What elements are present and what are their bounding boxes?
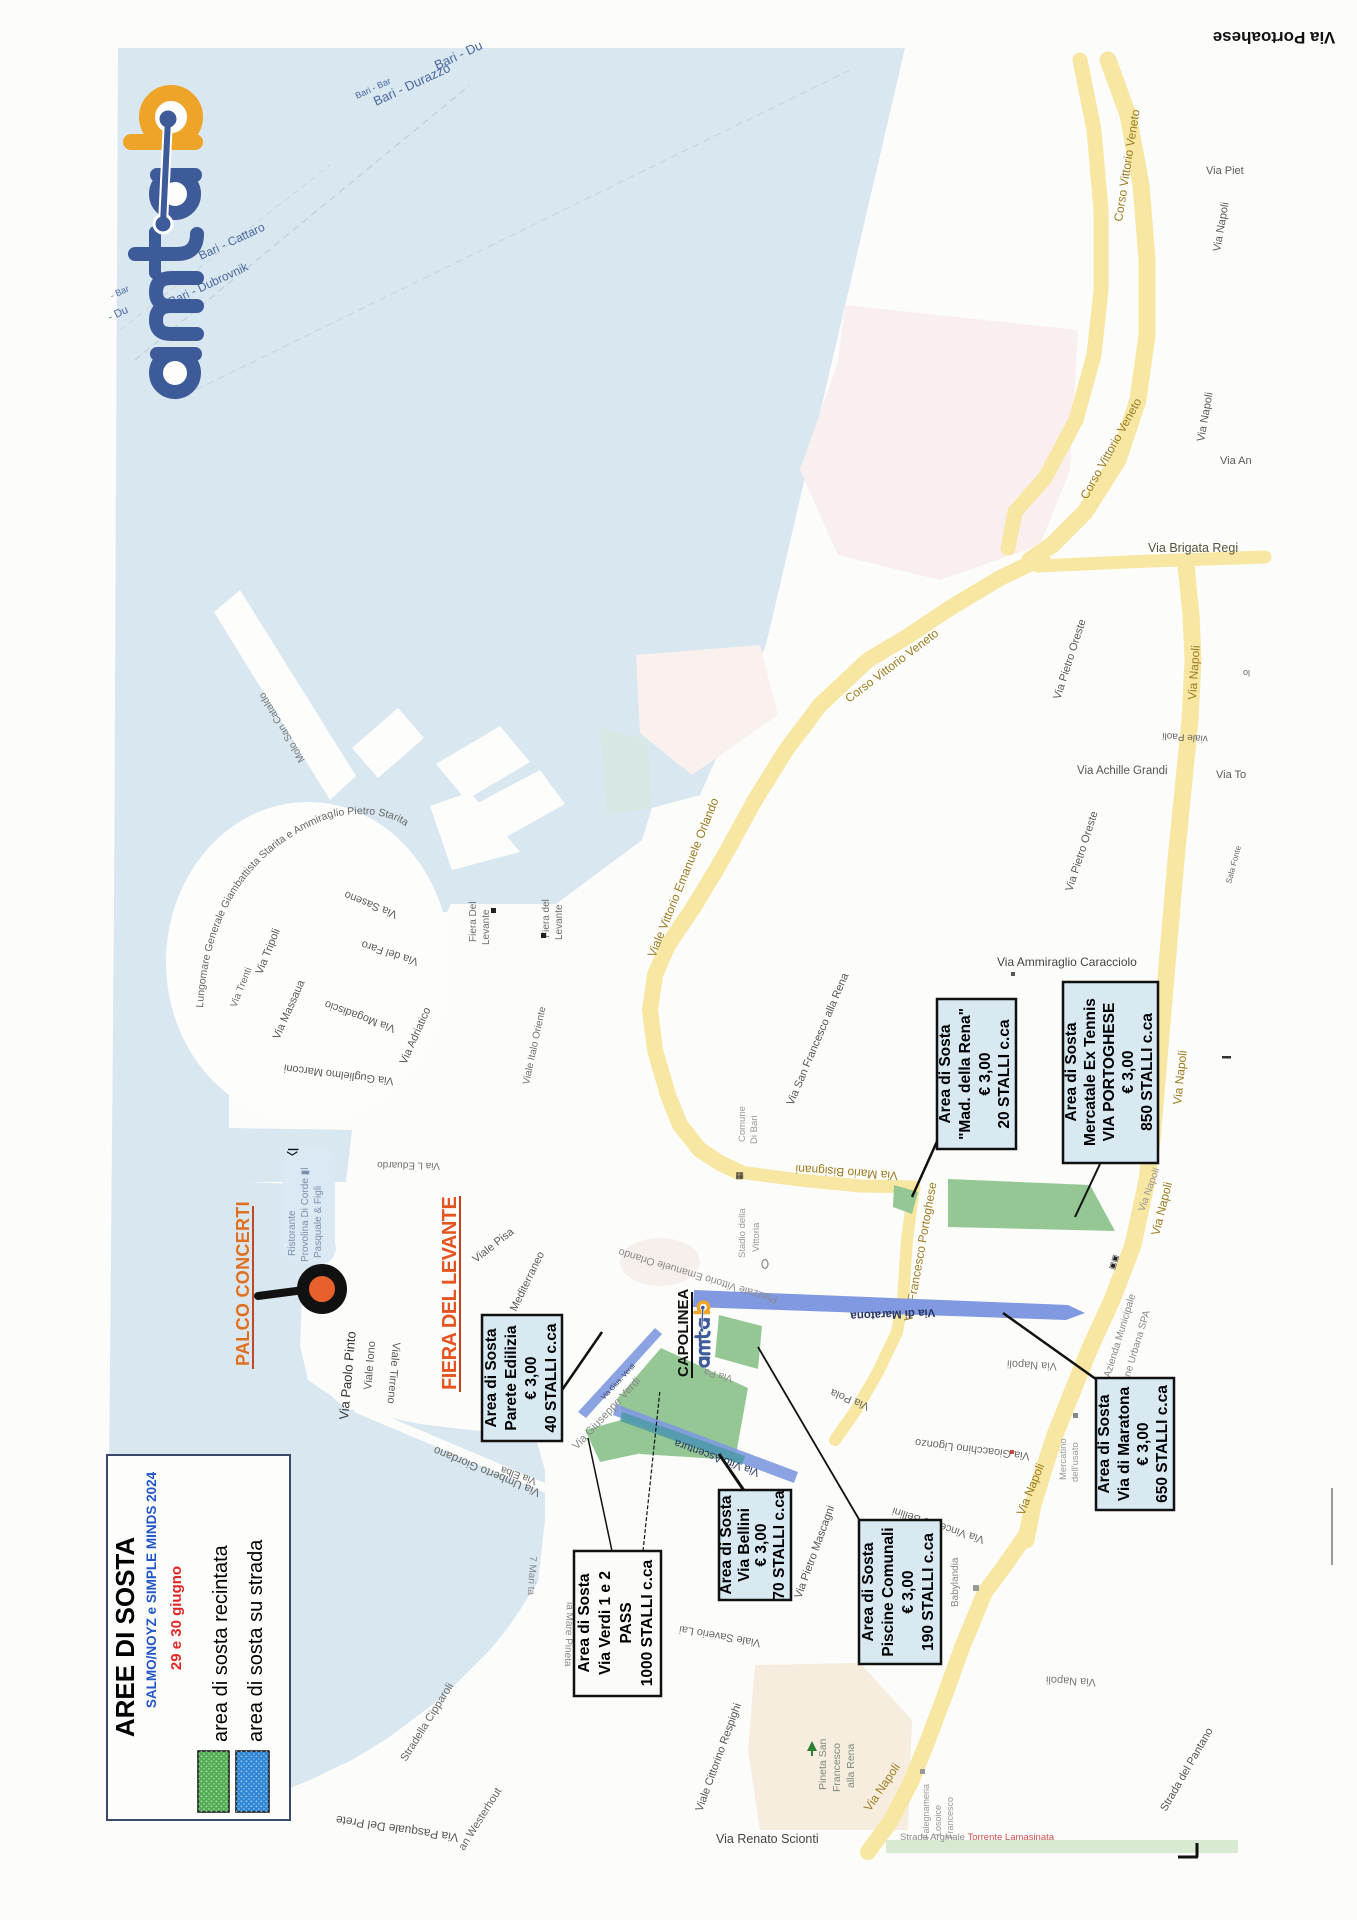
svg-text:650 STALLI c.ca: 650 STALLI c.ca: [1154, 1385, 1171, 1503]
svg-text:Pineta San: Pineta San: [817, 1738, 829, 1790]
svg-text:Vittoria: Vittoria: [751, 1222, 762, 1252]
svg-text:Ristorante: Ristorante: [287, 1210, 298, 1256]
svg-text:Levante: Levante: [481, 909, 492, 945]
svg-text:Fiera Del: Fiera Del: [468, 901, 479, 942]
svg-text:Area di Sosta: Area di Sosta: [1063, 1022, 1080, 1121]
svg-text:Area di Sosta: Area di Sosta: [483, 1328, 500, 1427]
svg-text:Via Bellini: Via Bellini: [736, 1508, 753, 1582]
svg-text:VIA PORTOGHESE: VIA PORTOGHESE: [1101, 1003, 1118, 1142]
svg-text:Area di Sosta: Area di Sosta: [1096, 1394, 1113, 1493]
svg-text:70 STALLI c.ca: 70 STALLI c.ca: [771, 1490, 788, 1599]
svg-text:Provolina Di Corde ▮l: Provolina Di Corde ▮l: [300, 1168, 311, 1262]
svg-text:Via Portoahese: Via Portoahese: [1213, 28, 1336, 47]
svg-text:850 STALLI c.ca: 850 STALLI c.ca: [1139, 1013, 1156, 1131]
svg-text:▦: ▦: [734, 1171, 744, 1180]
svg-text:Fiera del: Fiera del: [541, 899, 552, 938]
svg-text:SALMO/NOYZ e SIMPLE MINDS 2024: SALMO/NOYZ e SIMPLE MINDS 2024: [144, 1471, 159, 1708]
svg-text:Area di Sosta: Area di Sosta: [860, 1542, 877, 1641]
svg-text:dell'usato: dell'usato: [1070, 1442, 1081, 1482]
svg-text:AREE DI SOSTA: AREE DI SOSTA: [110, 1537, 140, 1738]
svg-text:Di Bari: Di Bari: [749, 1115, 760, 1144]
svg-text:Levante: Levante: [554, 904, 565, 940]
svg-text:€ 3,00: € 3,00: [753, 1523, 770, 1566]
svg-text:Via An: Via An: [1220, 455, 1252, 467]
svg-text:20 STALLI c.ca: 20 STALLI c.ca: [996, 1019, 1013, 1128]
svg-text:area di sosta recintata: area di sosta recintata: [210, 1544, 232, 1742]
svg-text:Via Piet: Via Piet: [1206, 165, 1244, 177]
svg-text:7 Mari ta: 7 Mari ta: [525, 1556, 538, 1596]
svg-text:area di sosta su strada: area di sosta su strada: [245, 1539, 267, 1742]
svg-text:€ 3,00: € 3,00: [1135, 1422, 1152, 1465]
svg-text:CAPOLINEA: CAPOLINEA: [675, 1288, 692, 1377]
svg-text:Mercatino: Mercatino: [1058, 1438, 1069, 1480]
svg-text:Area di Sosta: Area di Sosta: [937, 1024, 954, 1123]
svg-text:〈|: 〈|: [286, 1148, 299, 1162]
svg-text:40 STALLI c.ca: 40 STALLI c.ca: [543, 1323, 560, 1432]
svg-text:Area di Sosta: Area di Sosta: [576, 1573, 593, 1672]
svg-text:€ 3,00: € 3,00: [1120, 1050, 1137, 1093]
svg-text:190 STALLI c.ca: 190 STALLI c.ca: [920, 1533, 937, 1651]
svg-text:Via Ammiraglio Caracciolo: Via Ammiraglio Caracciolo: [997, 955, 1137, 969]
svg-text:Area di Sosta: Area di Sosta: [718, 1495, 735, 1594]
svg-text:Parete Edilizia: Parete Edilizia: [503, 1325, 520, 1430]
svg-text:€ 3,00: € 3,00: [977, 1052, 994, 1095]
svg-text:Francesco: Francesco: [831, 1743, 843, 1792]
svg-text:Comune: Comune: [737, 1106, 748, 1142]
svg-text:Stadio della: Stadio della: [737, 1208, 748, 1258]
svg-text:Via Renato Scionti: Via Renato Scionti: [716, 1832, 819, 1846]
svg-text:Via Brigata Regi: Via Brigata Regi: [1148, 541, 1238, 555]
svg-text:€ 3,00: € 3,00: [523, 1356, 540, 1399]
svg-text:Via Verdi 1 e 2: Via Verdi 1 e 2: [597, 1571, 614, 1675]
svg-text:29 e 30 giugno: 29 e 30 giugno: [168, 1566, 185, 1670]
svg-text:lo: lo: [1243, 668, 1250, 678]
svg-text:€ 3,00: € 3,00: [900, 1570, 917, 1613]
svg-text:Via L Eduardo: Via L Eduardo: [377, 1159, 440, 1171]
svg-text:Via di Maratona: Via di Maratona: [1116, 1386, 1133, 1501]
svg-text:Pasquale & Figli: Pasquale & Figli: [313, 1186, 324, 1258]
svg-text:Babylandia: Babylandia: [950, 1557, 961, 1607]
svg-text:"Mad. della Rena": "Mad. della Rena": [957, 1008, 974, 1140]
svg-text:Piscine Comunali: Piscine Comunali: [880, 1527, 897, 1656]
svg-text:Via Achille Grandi: Via Achille Grandi: [1077, 765, 1168, 777]
svg-text:1000 STALLI c.ca: 1000 STALLI c.ca: [639, 1559, 656, 1686]
svg-text:alla Rena: alla Rena: [845, 1743, 857, 1788]
svg-text:PASS: PASS: [618, 1602, 635, 1643]
svg-text:Via To: Via To: [1216, 769, 1246, 781]
svg-text:Mercatale Ex Tennis: Mercatale Ex Tennis: [1082, 998, 1099, 1146]
svg-text:FIERA DEL LEVANTE: FIERA DEL LEVANTE: [439, 1196, 461, 1390]
svg-text:PALCO CONCERTI: PALCO CONCERTI: [233, 1201, 253, 1366]
svg-text:Strada Arginale Torrente Lamas: Strada Arginale Torrente Lamasinata: [900, 1832, 1055, 1843]
svg-text:Falegnameria: Falegnameria: [921, 1784, 931, 1839]
